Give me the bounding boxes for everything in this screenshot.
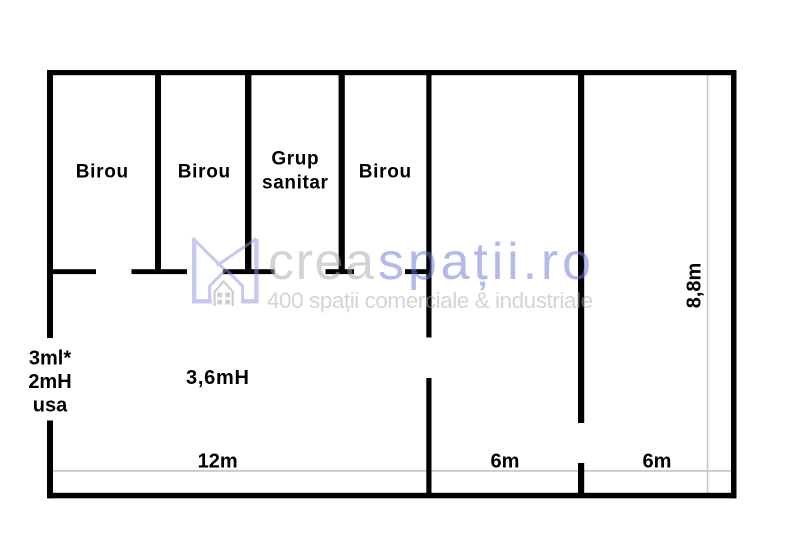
svg-text:3ml*: 3ml*: [29, 348, 71, 370]
svg-text:Birou: Birou: [178, 162, 231, 183]
svg-text:Birou: Birou: [359, 162, 412, 183]
svg-text:8,8m: 8,8m: [684, 263, 706, 309]
svg-text:sanitar: sanitar: [262, 173, 329, 194]
svg-text:Grup: Grup: [271, 149, 319, 170]
svg-text:crea: crea: [268, 233, 374, 291]
svg-text:2mH: 2mH: [28, 371, 71, 393]
svg-text:6m: 6m: [491, 451, 520, 473]
svg-text:400 spații comerciale & indust: 400 spații comerciale & industriale: [267, 288, 593, 313]
svg-text:12m: 12m: [198, 451, 238, 473]
svg-text:3,6mH: 3,6mH: [186, 367, 249, 389]
svg-text:Birou: Birou: [76, 162, 129, 183]
svg-text:6m: 6m: [643, 451, 672, 473]
svg-text:usa: usa: [33, 395, 68, 417]
